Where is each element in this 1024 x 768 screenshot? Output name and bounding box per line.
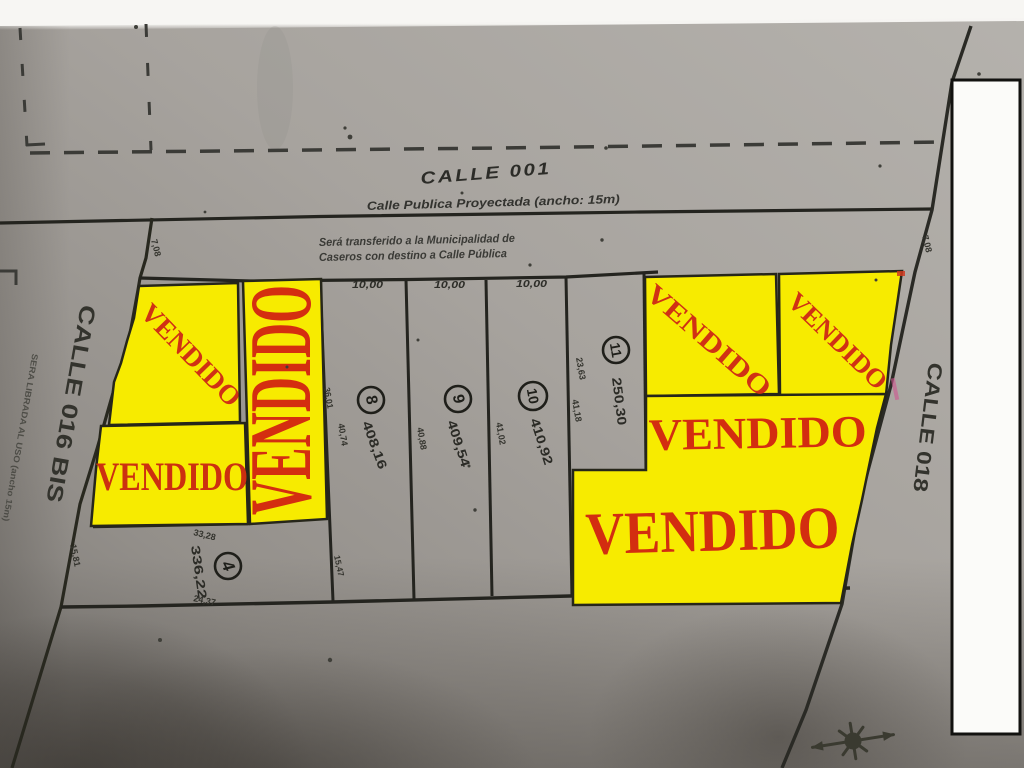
svg-text:VENDIDO: VENDIDO — [96, 454, 248, 499]
svg-text:VENDIDO: VENDIDO — [585, 494, 841, 567]
svg-text:10,00: 10,00 — [352, 279, 383, 291]
svg-text:VENDIDO: VENDIDO — [648, 406, 867, 460]
svg-text:VENDIDO: VENDIDO — [233, 285, 330, 515]
svg-text:10,00: 10,00 — [516, 278, 547, 290]
svg-text:11: 11 — [607, 341, 625, 359]
svg-text:10,00: 10,00 — [434, 279, 465, 291]
svg-text:10: 10 — [524, 387, 542, 405]
